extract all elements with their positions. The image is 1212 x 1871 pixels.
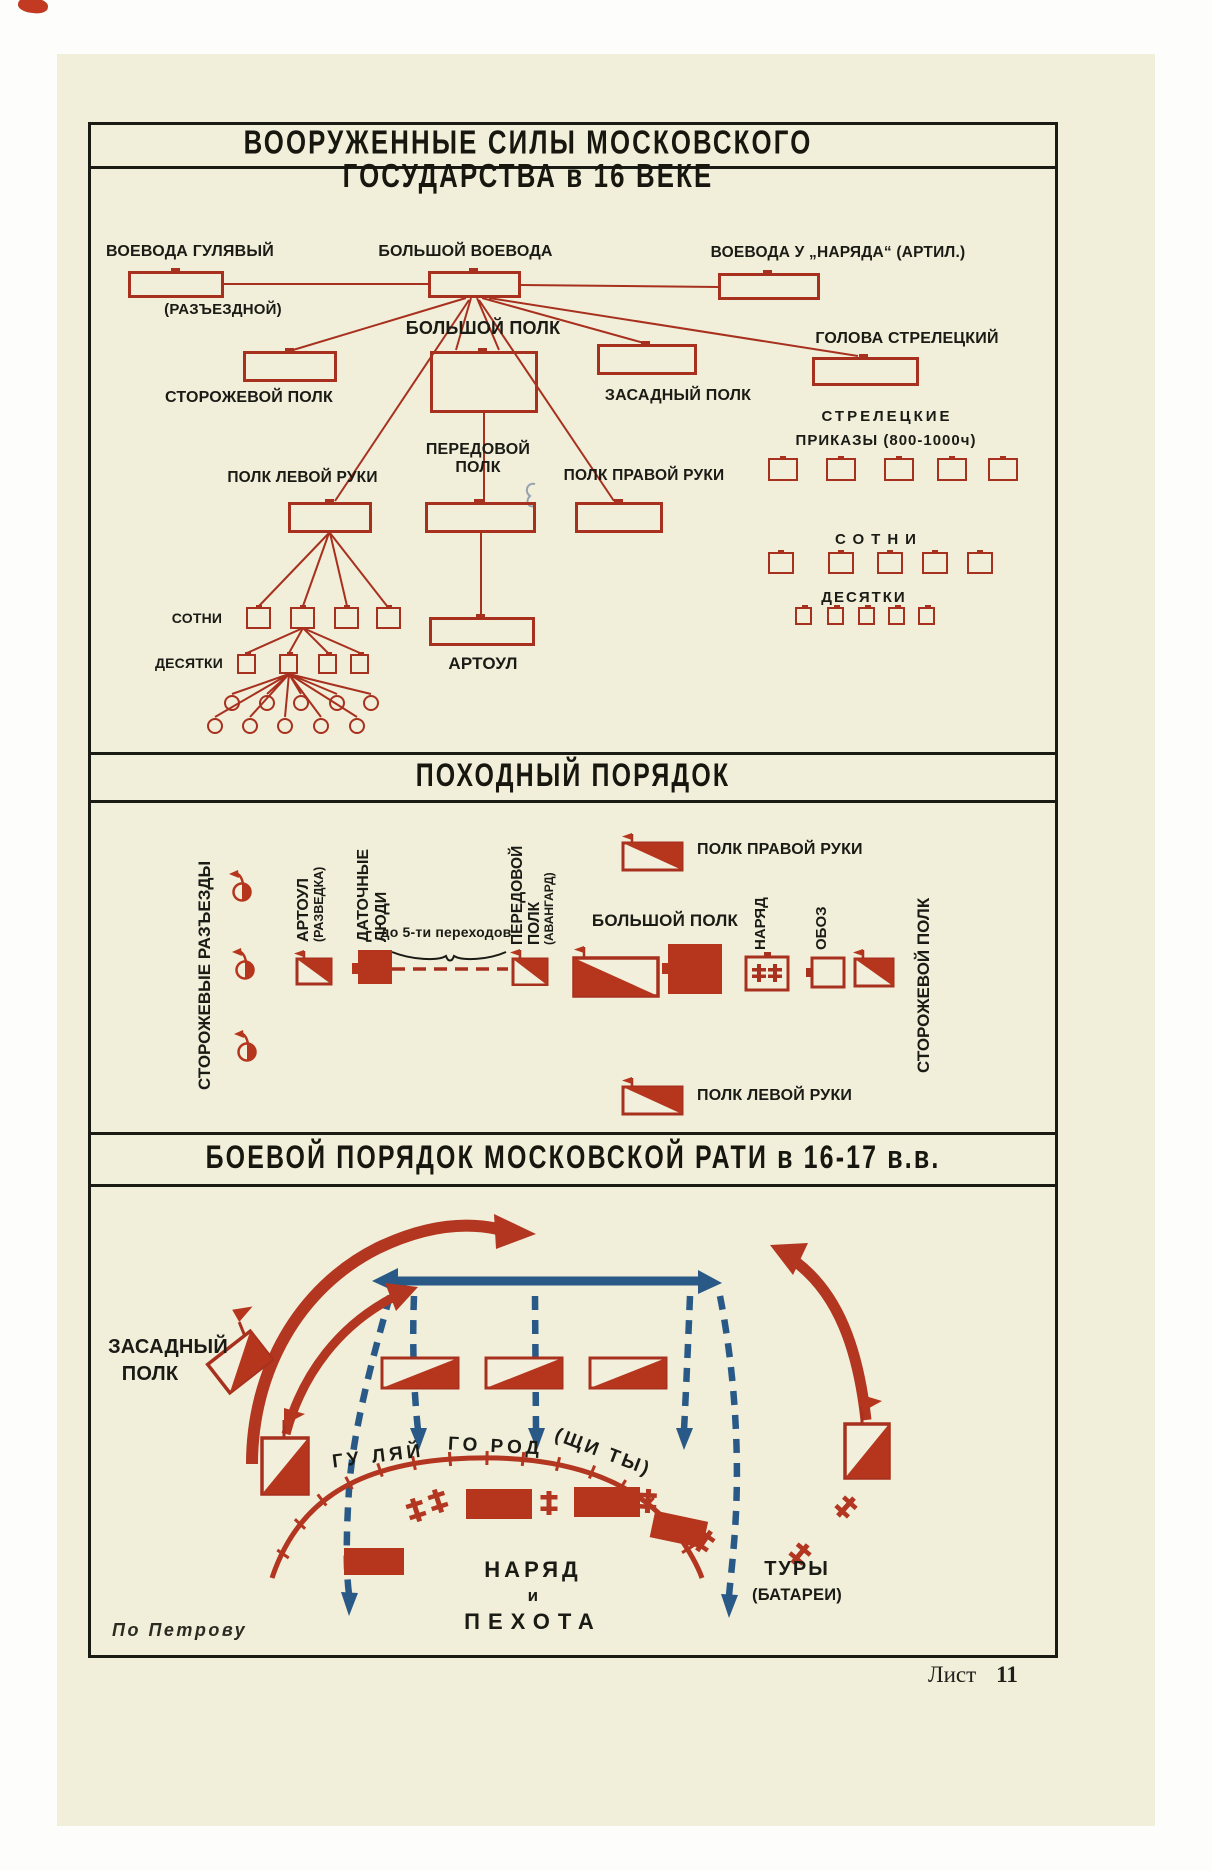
label-storozhevye-razyezdy: СТОРОЖЕВЫЕ РАЗЪЕЗДЫ: [195, 840, 215, 1090]
soldier-circle: [259, 695, 275, 711]
label-line: ПЕРЕДОВОЙ: [509, 833, 526, 945]
soldier-circle: [277, 718, 293, 734]
prikaz-box: [884, 458, 914, 481]
prikaz-box: [937, 458, 967, 481]
regiment-flag-icon: [852, 948, 896, 993]
infantry-square-icon: [668, 944, 722, 994]
plate-title: ВООРУЖЕННЫЕ СИЛЫ МОСКОВСКОГО ГОСУДАРСТВА…: [150, 126, 907, 193]
label-artoul-razvedka: АРТОУЛ (РАЗВЕДКА): [293, 842, 329, 942]
march-section-title: ПОХОДНЫЙ ПОРЯДОК: [156, 760, 990, 792]
label-prikazy: ПРИКАЗЫ (800-1000ч): [760, 433, 1012, 450]
divider: [88, 1132, 1058, 1135]
label-battle-zasadny-2: ПОЛК: [80, 1363, 220, 1385]
soldier-circle: [224, 695, 240, 711]
soldier-circle: [349, 718, 365, 734]
sotnya-box: [376, 607, 401, 629]
label-voevoda-gulyavy: ВОЕВОДА ГУЛЯВЫЙ: [100, 243, 280, 261]
soldier-circle: [207, 718, 223, 734]
label-line: СТОРОЖЕВЫЕ РАЗЪЕЗДЫ: [196, 840, 215, 1090]
desyatka-box: [318, 654, 337, 674]
divider: [88, 752, 1058, 755]
prikaz-box: [988, 458, 1018, 481]
box-polk-levoy-ruki: [288, 502, 372, 533]
soldier-circle: [242, 718, 258, 734]
label-march-bolshoy-polk: БОЛЬШОЙ ПОЛК: [585, 911, 745, 930]
label-peredovoy-avangard: ПЕРЕДОВОЙ ПОЛК (АВАНГАРД): [508, 833, 558, 945]
desyatka-box: [279, 654, 298, 674]
regiment-flag-icon: [510, 948, 550, 991]
label-razyezdnoy: (РАЗЪЕЗДНОЙ): [148, 302, 298, 319]
sotnya-box: [290, 607, 315, 629]
corner-ink-mark: [17, 0, 49, 15]
sheet-label: Лист11: [928, 1662, 1018, 1688]
label-batarei: (БАТАРЕИ): [713, 1586, 881, 1604]
scout-icon: [229, 870, 255, 909]
label-voevoda-u-naryada: ВОЕВОДА У „НАРЯДА“ (АРТИЛ.): [688, 244, 988, 261]
label-march-storozhevoy-polk: СТОРОЖЕВОЙ ПОЛК: [914, 877, 934, 1073]
desyatka-box: [350, 654, 369, 674]
oboz-box-icon: [806, 956, 846, 995]
sotnya-box: [967, 552, 993, 574]
regiment-flag-icon: [620, 1076, 684, 1121]
box-bolshoy-voevoda: [428, 271, 521, 298]
label-battle-zasadny-1: ЗАСАДНЫЙ: [98, 1336, 238, 1358]
label-battle-i: и: [463, 1586, 603, 1605]
label-desyatki-left: ДЕСЯТКИ: [148, 656, 230, 672]
sotnya-box: [334, 607, 359, 629]
credit-caption: По Петрову: [112, 1620, 247, 1641]
sotnya-box: [768, 552, 794, 574]
box-storozhevoy-polk: [243, 351, 337, 382]
soldier-circle: [313, 718, 329, 734]
desyatka-box: [795, 607, 812, 625]
label-zasadny-polk: ЗАСАДНЫЙ ПОЛК: [588, 387, 768, 405]
scout-icon: [234, 1030, 260, 1069]
label-bolshoy-voevoda: БОЛЬШОЙ ВОЕВОДА: [368, 243, 563, 261]
sotnya-box: [246, 607, 271, 629]
desyatka-box: [237, 654, 256, 674]
sheet-word: Лист: [928, 1662, 976, 1687]
label-march-polk-pravoy: ПОЛК ПРАВОЙ РУКИ: [697, 841, 887, 859]
label-line: ОБОЗ: [814, 894, 831, 950]
label-storozhevoy-polk: СТОРОЖЕВОЙ ПОЛК: [158, 389, 340, 407]
desyatka-box: [827, 607, 844, 625]
desyatka-box: [888, 607, 905, 625]
prikaz-box: [768, 458, 798, 481]
label-perekhody: до 5-ти переходов: [380, 925, 512, 941]
scout-icon: [232, 948, 258, 987]
sheet-number: 11: [996, 1662, 1018, 1687]
label-polk-levoy-ruki: ПОЛК ЛЕВОЙ РУКИ: [220, 469, 385, 486]
box-peredovoy-polk: [425, 502, 536, 533]
sotnya-box: [922, 552, 948, 574]
label-line: ПЕРЕДОВОЙ: [426, 441, 530, 458]
label-line: (АВАНГАРД): [543, 833, 556, 945]
box-golova-streletsky: [812, 357, 919, 386]
label-battle-pekhota: ПЕХОТА: [443, 1610, 623, 1635]
regiment-flag-icon: [620, 832, 684, 877]
label-golova-streletsky: ГОЛОВА СТРЕЛЕЦКИЙ: [798, 330, 1016, 348]
regiment-flag-icon: [572, 944, 660, 1003]
label-tury: ТУРЫ: [735, 1558, 859, 1580]
label-march-polk-levoy: ПОЛК ЛЕВОЙ РУКИ: [697, 1087, 887, 1105]
soldier-circle: [293, 695, 309, 711]
sotnya-box: [877, 552, 903, 574]
label-sotni-left: СОТНИ: [166, 611, 228, 627]
soldier-circle: [363, 695, 379, 711]
box-voevoda-gulyavy: [128, 271, 224, 298]
label-oboz: ОБОЗ: [813, 894, 831, 950]
box-zasadny-polk: [597, 344, 697, 375]
soldier-circle: [329, 695, 345, 711]
box-polk-pravoy-ruki: [575, 502, 663, 533]
label-line: (РАЗВЕДКА): [313, 842, 327, 942]
box-voevoda-u-naryada: [718, 273, 820, 300]
divider: [88, 1184, 1058, 1187]
label-march-naryad: НАРЯД: [752, 886, 770, 950]
label-artoul: АРТОУЛ: [428, 654, 538, 673]
prikaz-box: [826, 458, 856, 481]
label-line: ПОЛК: [455, 459, 500, 476]
label-line: АРТОУЛ: [295, 842, 313, 942]
label-line: ПОЛК: [526, 833, 543, 945]
regiment-flag-icon: [294, 950, 334, 991]
label-streletskie: СТРЕЛЕЦКИЕ: [798, 409, 976, 426]
label-line: НАРЯД: [753, 886, 770, 950]
label-sotni-right: СОТНИ: [814, 532, 944, 549]
divider: [88, 800, 1058, 803]
label-line: ДАТОЧНЫЕ: [355, 842, 373, 942]
battle-section-title: БОЕВОЙ ПОРЯДОК МОСКОВСКОЙ РАТИ в 16-17 в…: [156, 1142, 990, 1174]
desyatka-box: [918, 607, 935, 625]
scan-page: ВООРУЖЕННЫЕ СИЛЫ МОСКОВСКОГО ГОСУДАРСТВА…: [0, 0, 1212, 1871]
label-peredovoy-polk: ПЕРЕДОВОЙ ПОЛК: [418, 441, 538, 477]
box-artoul: [429, 617, 535, 646]
label-line: СТОРОЖЕВОЙ ПОЛК: [915, 877, 934, 1073]
infantry-square-icon: [358, 950, 392, 984]
sotnya-box: [828, 552, 854, 574]
naryad-box-icon: [744, 952, 790, 997]
label-polk-pravoy-ruki: ПОЛК ПРАВОЙ РУКИ: [558, 467, 730, 484]
label-bolshoy-polk: БОЛЬШОЙ ПОЛК: [393, 318, 573, 338]
label-battle-naryad: НАРЯД: [463, 1558, 603, 1583]
desyatka-box: [858, 607, 875, 625]
box-bolshoy-polk: [430, 351, 538, 413]
